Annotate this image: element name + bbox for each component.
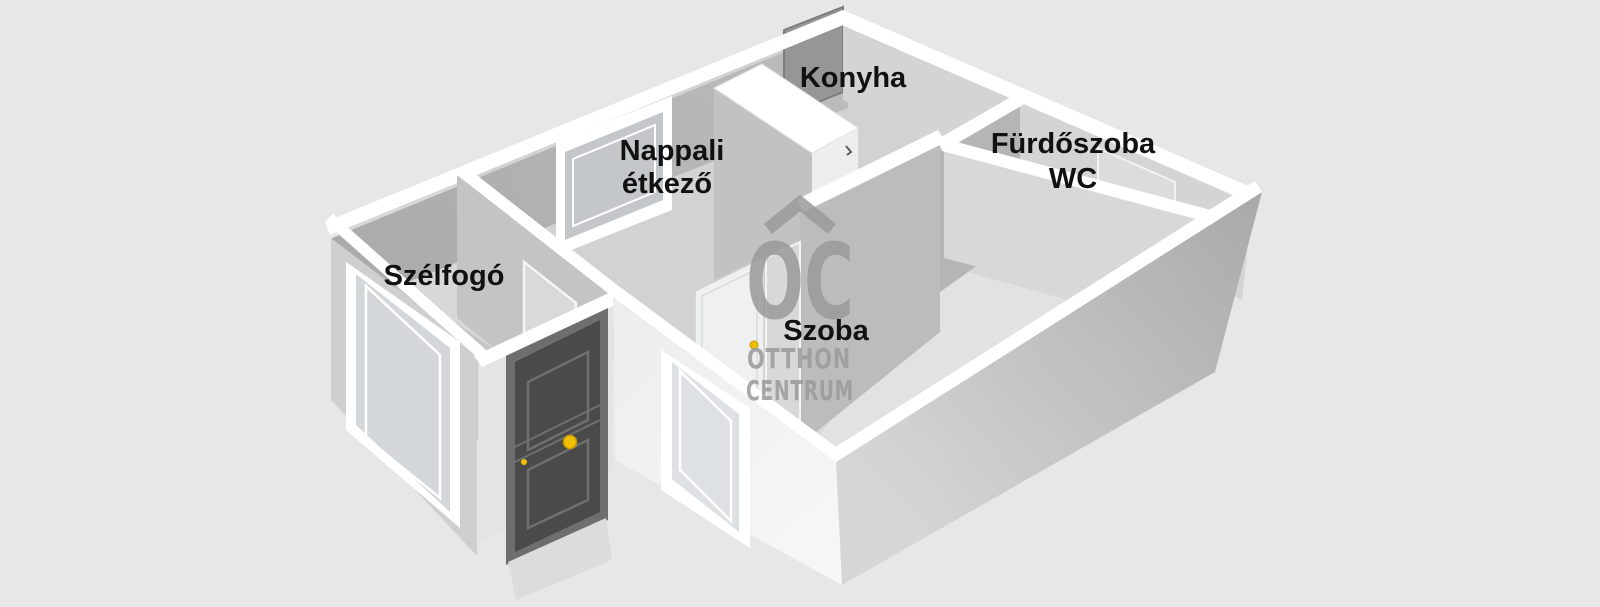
- room-label-nappali-line1: Nappali: [620, 135, 725, 167]
- room-label-szoba: Szoba: [783, 315, 869, 347]
- room-label-konyha: Konyha: [800, 62, 907, 94]
- room-label-furdoszoba-line1: Fürdőszoba: [991, 128, 1156, 160]
- room-label-nappali-line2: étkező: [622, 168, 712, 200]
- entrance-door-keyhole: [521, 459, 527, 465]
- floorplan-render: OC OTTHON CENTRUM Konyha Nappali étkező …: [0, 0, 1600, 607]
- room-label-furdoszoba-line2: WC: [1049, 163, 1097, 195]
- room-label-szelfogo: Szélfogó: [384, 260, 505, 292]
- watermark: OC OTTHON CENTRUM: [746, 203, 854, 407]
- entrance-door-knob: [564, 436, 577, 449]
- watermark-line2: CENTRUM: [746, 374, 854, 407]
